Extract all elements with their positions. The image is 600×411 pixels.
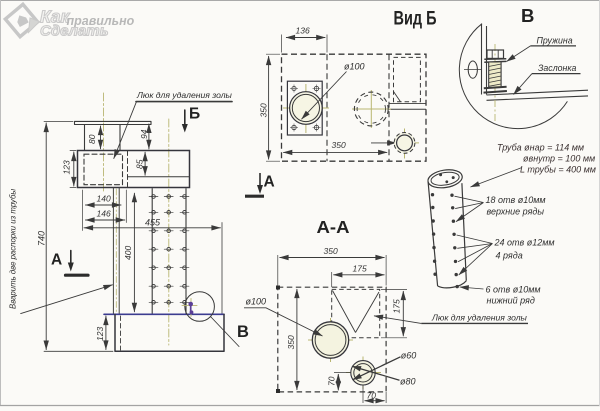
svg-text:24 отв ø12мм: 24 отв ø12мм: [494, 238, 555, 248]
svg-text:ø100: ø100: [344, 62, 365, 72]
svg-text:80: 80: [87, 134, 97, 144]
svg-text:А: А: [264, 174, 275, 191]
svg-text:Люк для удаления золы: Люк для удаления золы: [136, 90, 233, 100]
svg-text:140: 140: [97, 194, 111, 204]
svg-text:740: 740: [37, 231, 47, 246]
svg-text:350: 350: [324, 246, 338, 256]
svg-text:А: А: [51, 252, 62, 269]
svg-text:ø100: ø100: [246, 297, 267, 307]
svg-text:123: 123: [62, 160, 72, 174]
svg-text:ø60: ø60: [401, 351, 417, 361]
svg-text:ø80: ø80: [400, 377, 416, 387]
svg-text:В: В: [237, 323, 249, 341]
svg-text:Вид Б: Вид Б: [394, 9, 437, 30]
svg-text:350: 350: [259, 103, 269, 117]
svg-text:175: 175: [392, 299, 402, 313]
svg-text:Заслонка: Заслонка: [538, 63, 577, 73]
svg-text:70: 70: [367, 390, 377, 400]
svg-text:нижний ряд: нижний ряд: [487, 296, 535, 306]
svg-text:85: 85: [135, 159, 145, 169]
svg-text:18 отв ø10мм: 18 отв ø10мм: [486, 195, 546, 205]
svg-text:А-А: А-А: [317, 217, 350, 237]
svg-text:175: 175: [353, 264, 367, 274]
svg-text:455: 455: [145, 218, 161, 228]
svg-text:Б: Б: [189, 106, 200, 123]
svg-text:Вварить две распорки из трубы: Вварить две распорки из трубы: [9, 189, 18, 309]
svg-text:L трубы = 400 мм: L трубы = 400 мм: [520, 165, 596, 175]
svg-text:123: 123: [95, 327, 105, 341]
svg-text:400: 400: [123, 246, 133, 260]
svg-text:Люк для удаления золы: Люк для удаления золы: [431, 313, 528, 323]
svg-text:верхние ряды: верхние ряды: [487, 207, 545, 217]
svg-text:70: 70: [327, 376, 337, 386]
svg-text:Труба øнар = 114 мм: Труба øнар = 114 мм: [497, 143, 584, 153]
svg-text:6 отв ø10мм: 6 отв ø10мм: [486, 285, 541, 295]
svg-text:136: 136: [296, 26, 310, 36]
svg-text:146: 146: [97, 209, 111, 219]
svg-text:Сделать: Сделать: [40, 23, 109, 40]
svg-text:4 ряда: 4 ряда: [496, 251, 523, 261]
svg-text:В: В: [521, 5, 534, 26]
svg-text:94: 94: [139, 129, 149, 139]
svg-text:350: 350: [286, 335, 296, 349]
svg-text:350: 350: [332, 140, 346, 150]
svg-text:øвнутр = 100 мм: øвнутр = 100 мм: [523, 154, 595, 164]
svg-text:Пружина: Пружина: [537, 36, 573, 46]
